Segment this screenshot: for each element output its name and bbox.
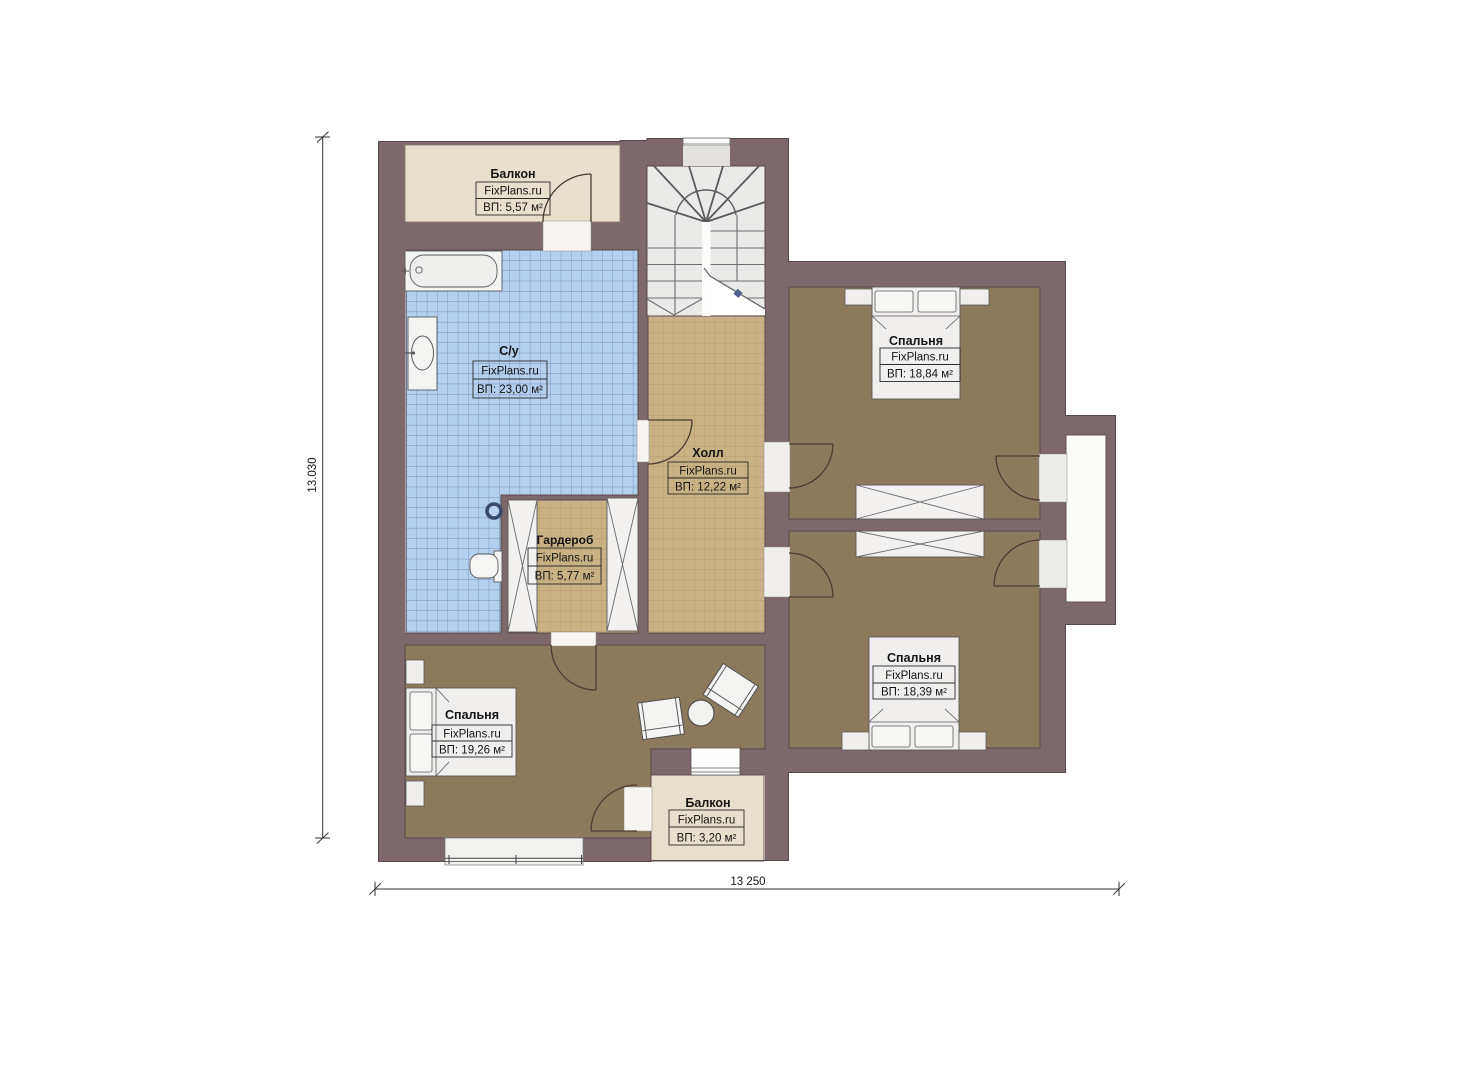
svg-text:Балкон: Балкон [490,167,535,181]
svg-text:ВП: 23,00 м²: ВП: 23,00 м² [477,384,543,396]
svg-text:FixPlans.ru: FixPlans.ru [484,186,542,198]
svg-text:Спальня: Спальня [445,708,499,722]
svg-text:Балкон: Балкон [685,796,730,810]
svg-text:ВП: 3,20 м²: ВП: 3,20 м² [677,833,737,845]
svg-text:С/у: С/у [499,344,519,358]
svg-text:Холл: Холл [692,446,723,460]
svg-text:Спальня: Спальня [887,651,941,665]
svg-text:ВП: 12,22 м²: ВП: 12,22 м² [675,482,741,494]
svg-text:Гардероб: Гардероб [537,533,594,547]
svg-text:Спальня: Спальня [889,334,943,348]
svg-text:ВП: 5,77 м²: ВП: 5,77 м² [535,571,595,583]
svg-text:ВП: 19,26 м²: ВП: 19,26 м² [439,745,505,757]
svg-text:ВП: 18,39 м²: ВП: 18,39 м² [881,687,947,699]
svg-text:13.030: 13.030 [307,457,319,492]
svg-text:13 250: 13 250 [730,876,765,888]
svg-text:FixPlans.ru: FixPlans.ru [891,352,949,364]
svg-text:FixPlans.ru: FixPlans.ru [678,815,736,827]
svg-text:FixPlans.ru: FixPlans.ru [443,729,501,741]
svg-text:FixPlans.ru: FixPlans.ru [679,466,737,478]
svg-text:FixPlans.ru: FixPlans.ru [536,553,594,565]
svg-text:ВП: 18,84 м²: ВП: 18,84 м² [887,369,953,381]
svg-text:FixPlans.ru: FixPlans.ru [481,366,539,378]
svg-text:FixPlans.ru: FixPlans.ru [885,670,943,682]
svg-text:ВП: 5,57 м²: ВП: 5,57 м² [483,202,543,214]
